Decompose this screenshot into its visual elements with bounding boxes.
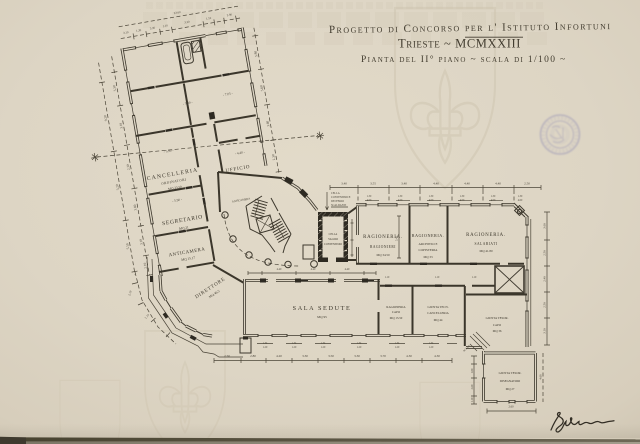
svg-text:GIUNTA TESOR.: GIUNTA TESOR.	[499, 371, 522, 375]
svg-text:3.55: 3.55	[370, 182, 376, 186]
svg-text:1.10: 1.10	[471, 397, 474, 402]
svg-text:4.60: 4.60	[518, 199, 523, 202]
svg-text:VALORI: VALORI	[328, 238, 338, 241]
svg-text:3.30: 3.30	[302, 354, 308, 358]
svg-text:1.10: 1.10	[435, 276, 440, 279]
svg-text:4.30: 4.30	[406, 354, 412, 358]
svg-text:3.10: 3.10	[543, 328, 547, 334]
svg-text:1.20: 1.20	[357, 346, 362, 349]
svg-text:3.70: 3.70	[380, 354, 386, 358]
svg-text:MQ 27: MQ 27	[506, 387, 515, 391]
svg-text:2.60: 2.60	[508, 405, 514, 409]
svg-text:4.40: 4.40	[433, 182, 439, 186]
svg-text:1.20: 1.20	[292, 346, 297, 349]
svg-text:2.50: 2.50	[524, 182, 530, 186]
svg-text:1.00: 1.00	[471, 368, 474, 373]
svg-text:Trieste ~ MCMXXIII: Trieste ~ MCMXXIII	[398, 37, 521, 51]
svg-text:1.30: 1.30	[491, 195, 496, 198]
svg-text:1.30: 1.30	[460, 195, 465, 198]
svg-text:2.50: 2.50	[543, 302, 547, 308]
svg-text:1.30: 1.30	[398, 195, 403, 198]
svg-text:1.10: 1.10	[472, 276, 477, 279]
svg-text:RAGIONERIA.: RAGIONERIA.	[412, 233, 445, 238]
svg-text:1.20: 1.20	[395, 346, 400, 349]
svg-text:4.20: 4.20	[276, 354, 282, 358]
svg-text:1.20: 1.20	[263, 346, 268, 349]
svg-text:3.30: 3.30	[354, 354, 360, 358]
svg-text:CAPO: CAPO	[392, 310, 401, 314]
svg-text:1.20: 1.20	[321, 346, 326, 349]
svg-text:MQ 13.50: MQ 13.50	[390, 316, 403, 320]
svg-text:3.40: 3.40	[341, 182, 347, 186]
svg-text:3.60: 3.60	[543, 223, 547, 229]
svg-text:ARCHIVIO E: ARCHIVIO E	[419, 242, 438, 246]
svg-text:CONTENITORI: CONTENITORI	[324, 243, 342, 246]
svg-text:2.50: 2.50	[224, 354, 230, 358]
svg-text:SCALDANTI: SCALDANTI	[331, 204, 346, 207]
svg-text:CANCELLERIA: CANCELLERIA	[427, 311, 449, 315]
svg-text:5.45: 5.45	[396, 236, 399, 241]
svg-text:Pianta del II° piano ~ scala d: Pianta del II° piano ~ scala di 1/100 ~	[361, 54, 567, 65]
svg-text:4.40: 4.40	[277, 268, 282, 271]
svg-text:4.30: 4.30	[434, 354, 440, 358]
svg-text:1.20: 1.20	[429, 346, 434, 349]
svg-text:MQ 95: MQ 95	[317, 315, 327, 319]
svg-text:RAGIONIERI: RAGIONIERI	[370, 245, 396, 249]
svg-text:3.40: 3.40	[401, 182, 407, 186]
svg-text:MQ 33: MQ 33	[423, 255, 433, 259]
svg-text:MQ 41.80: MQ 41.80	[479, 249, 493, 253]
svg-text:DISEGNATORI: DISEGNATORI	[500, 379, 520, 383]
svg-text:4.40: 4.40	[345, 268, 350, 271]
svg-text:GIUNTA TESOR.: GIUNTA TESOR.	[486, 316, 509, 320]
svg-text:COPISTERIA: COPISTERIA	[418, 248, 438, 252]
svg-text:1.30: 1.30	[429, 195, 434, 198]
svg-text:2.50: 2.50	[543, 250, 547, 256]
svg-text:MQ 36: MQ 36	[493, 329, 502, 333]
svg-text:SALA SEDUTE: SALA SEDUTE	[293, 305, 352, 312]
svg-text:4.40: 4.40	[311, 268, 316, 271]
svg-text:4.40: 4.40	[464, 182, 470, 186]
svg-text:4.40: 4.40	[495, 182, 501, 186]
svg-text:SALARIATI: SALARIATI	[474, 242, 497, 246]
svg-text:CELLA: CELLA	[331, 192, 340, 195]
svg-text:CAPO: CAPO	[493, 323, 502, 327]
svg-text:3.50: 3.50	[328, 354, 334, 358]
svg-text:4.60: 4.60	[539, 374, 543, 380]
svg-text:MQ 34.50: MQ 34.50	[376, 253, 390, 257]
svg-text:4.60: 4.60	[471, 384, 474, 389]
svg-text:RAGIONERIA: RAGIONERIA	[386, 305, 406, 309]
svg-text:CELLA: CELLA	[329, 233, 338, 236]
svg-text:CONTENITRICE: CONTENITRICE	[331, 196, 351, 199]
svg-text:1.30: 1.30	[518, 195, 523, 198]
svg-text:1.10: 1.10	[385, 276, 390, 279]
svg-text:1.30: 1.30	[367, 195, 372, 198]
svg-text:GIUNTA TECN.: GIUNTA TECN.	[427, 305, 448, 309]
svg-text:RAGIONERIA.: RAGIONERIA.	[466, 233, 506, 238]
svg-text:DEI FERRI: DEI FERRI	[331, 200, 344, 203]
svg-text:MQ 44: MQ 44	[434, 318, 443, 322]
svg-text:2.80: 2.80	[250, 354, 256, 358]
svg-text:2.40: 2.40	[543, 276, 547, 282]
